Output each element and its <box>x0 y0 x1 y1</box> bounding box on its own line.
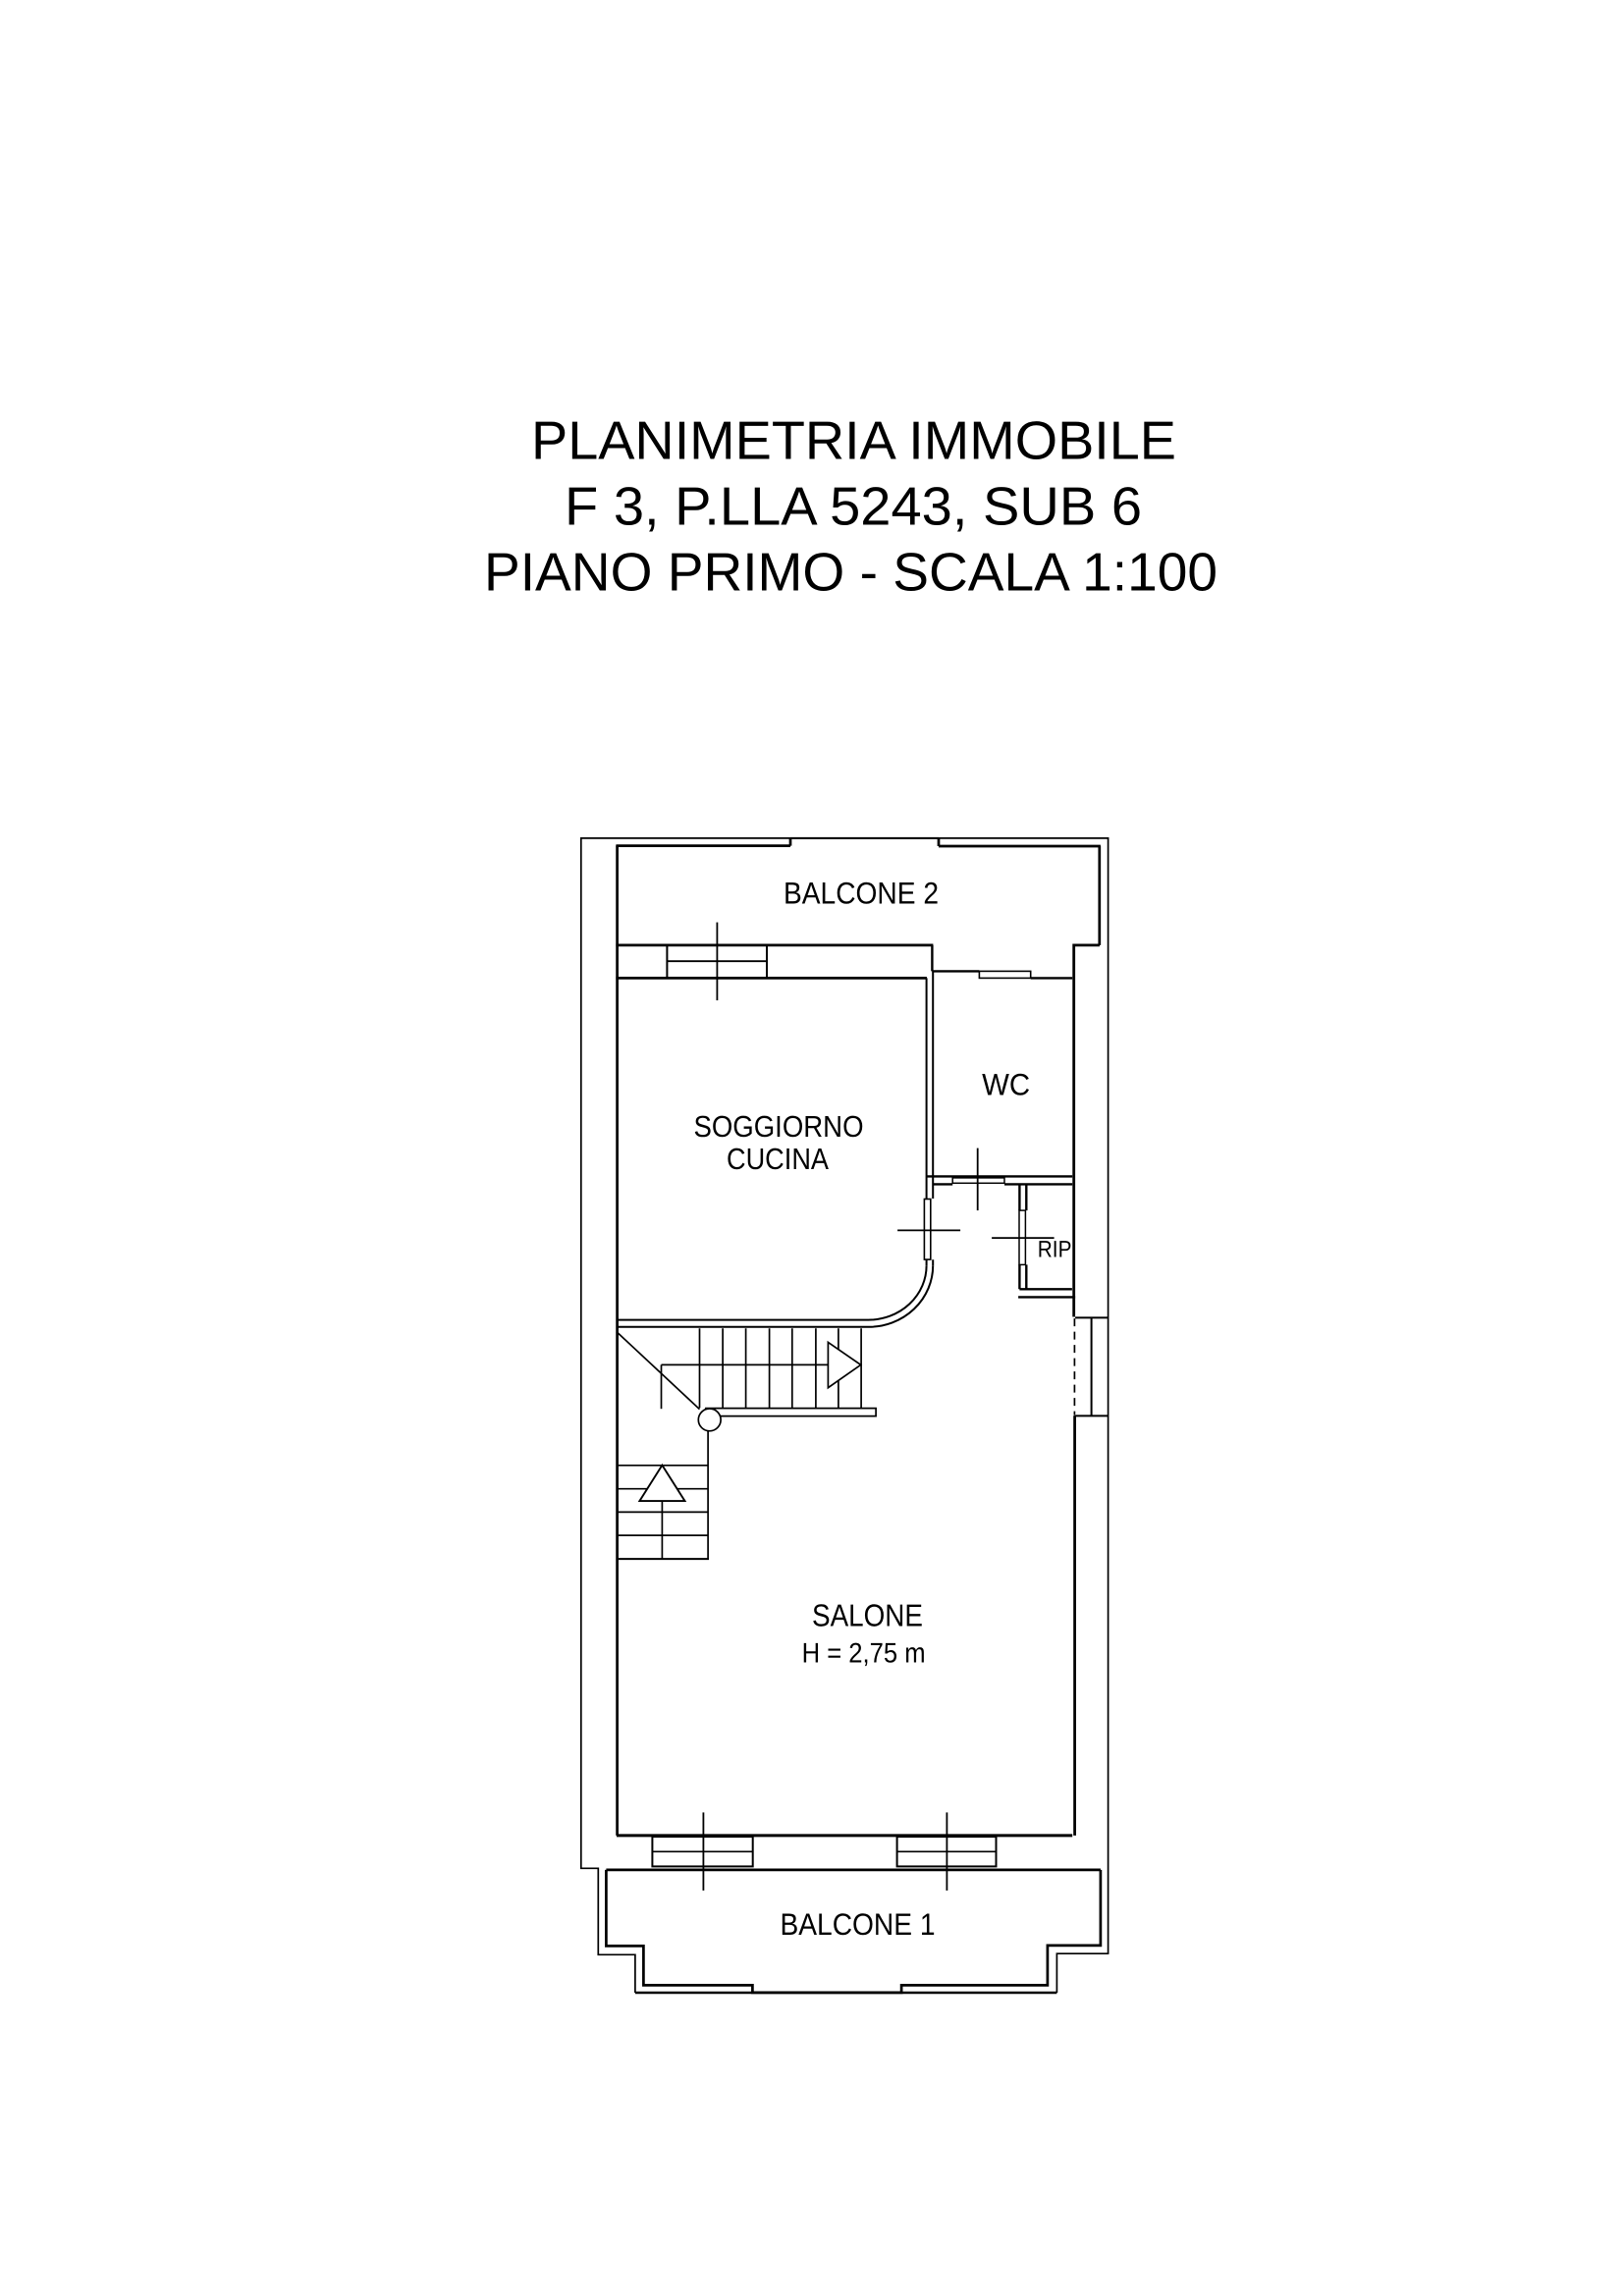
svg-text:H = 2,75 m: H = 2,75 m <box>802 1638 926 1670</box>
svg-text:SOGGIORNO: SOGGIORNO <box>694 1110 864 1144</box>
svg-text:PLANIMETRIA IMMOBILE: PLANIMETRIA IMMOBILE <box>531 409 1176 470</box>
svg-text:RIP: RIP <box>1038 1236 1072 1262</box>
svg-text:BALCONE 2: BALCONE 2 <box>784 876 939 910</box>
svg-text:SALONE: SALONE <box>812 1598 923 1633</box>
svg-text:WC: WC <box>982 1067 1030 1101</box>
svg-text:F 3, P.LLA 5243, SUB 6: F 3, P.LLA 5243, SUB 6 <box>565 475 1142 536</box>
svg-text:BALCONE 1: BALCONE 1 <box>781 1907 936 1942</box>
svg-text:PIANO PRIMO - SCALA 1:100: PIANO PRIMO - SCALA 1:100 <box>484 541 1217 602</box>
svg-text:CUCINA: CUCINA <box>727 1143 830 1176</box>
